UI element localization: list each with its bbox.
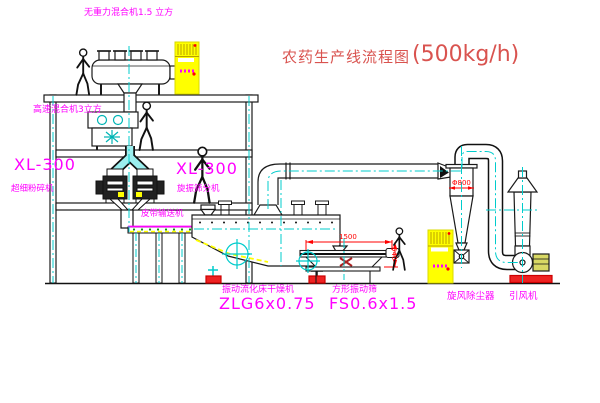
title-capacity: (500kg/h)	[412, 44, 519, 66]
high-speed-mixer	[88, 112, 138, 150]
label-belt-conveyor: 皮带输送机	[141, 210, 184, 219]
control-cabinet-top	[175, 42, 199, 94]
induced-draft-fan	[510, 246, 552, 283]
label-mill-left-model: XL-300	[14, 157, 76, 173]
person-icon	[76, 49, 89, 95]
dim-sieve-length: 1500	[339, 234, 357, 241]
label-mill-right-name: 旋振筛分机	[177, 185, 220, 194]
label-gravity-mixer: 无重力混合机1.5 立方	[84, 9, 173, 19]
label-fan: 引风机	[509, 292, 538, 302]
control-cabinet-right	[428, 230, 453, 283]
dim-sieve-height: 540	[390, 247, 397, 260]
title-chinese: 农药生产线流程图	[282, 48, 410, 66]
page-title: 农药生产线流程图 (500kg/h)	[282, 44, 519, 66]
cad-flow-diagram: 农药生产线流程图 (500kg/h) 无重力混合机1.5 立方 高速混合机3立方…	[0, 0, 600, 403]
label-sieve-model: FS0.6x1.5	[329, 296, 417, 312]
dim-cyclone-diameter: Φ800	[452, 180, 471, 187]
label-mill-left-name: 超细粉碎机	[11, 185, 54, 194]
label-dryer-model: ZLG6x0.75	[219, 296, 316, 312]
exhaust-duct	[258, 163, 438, 206]
label-mill-right-model: XL-300	[176, 161, 238, 177]
mill-discharge-chute	[121, 210, 133, 228]
person-icon	[140, 102, 153, 150]
label-cyclone: 旋风除尘器	[447, 292, 495, 302]
label-high-speed-mixer: 高速混合机3立方	[33, 106, 102, 116]
